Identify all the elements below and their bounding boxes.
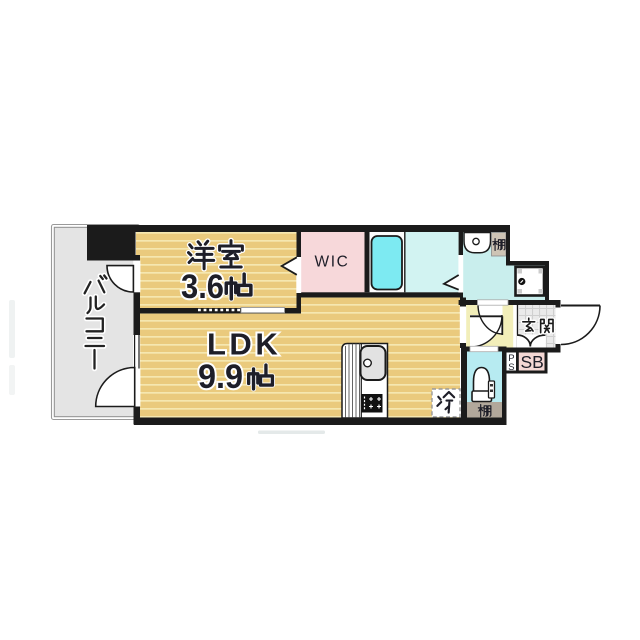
- svg-text:SB: SB: [521, 352, 544, 372]
- svg-text:S: S: [508, 362, 514, 373]
- svg-text:9.9: 9.9: [198, 358, 243, 396]
- svg-text:3.6: 3.6: [181, 268, 224, 306]
- svg-text:LDK: LDK: [207, 327, 281, 362]
- svg-text:WIC: WIC: [315, 254, 350, 271]
